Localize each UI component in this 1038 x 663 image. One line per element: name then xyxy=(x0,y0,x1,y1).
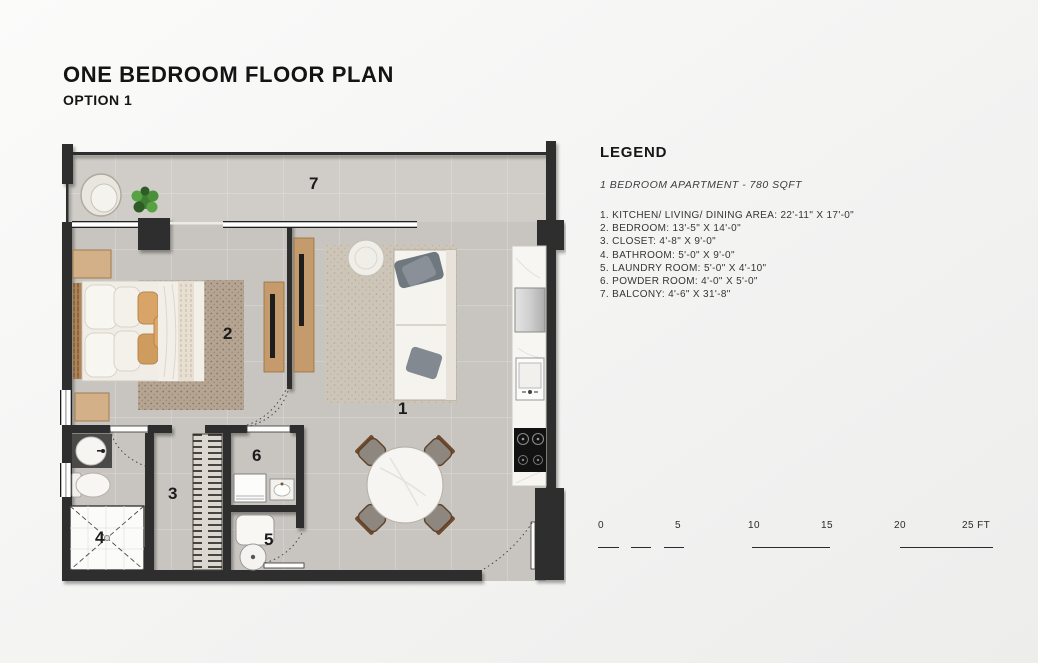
tv-console-living xyxy=(294,238,314,372)
legend-item: 5. LAUNDRY ROOM: 5'-0" X 4'-10" xyxy=(600,262,854,275)
legend-heading: LEGEND xyxy=(600,144,667,161)
legend-item: 6. POWDER ROOM: 4'-0" X 5'-0" xyxy=(600,275,854,288)
scale-tick-label: 10 xyxy=(748,520,760,531)
nightstand xyxy=(75,393,109,421)
sofa xyxy=(393,250,456,400)
room-label-laundry: 5 xyxy=(264,530,273,549)
bathroom-vanity xyxy=(72,434,112,468)
bathroom-window xyxy=(60,463,72,497)
bed xyxy=(73,281,204,381)
scale-bar-segment xyxy=(664,547,684,548)
closet-wardrobe xyxy=(193,434,222,570)
room-label-bedroom: 2 xyxy=(223,324,232,343)
room-label-living: 1 xyxy=(398,399,407,418)
kitchen xyxy=(512,246,546,486)
floor-plan-drawing: 7 2 1 3 4 6 5 xyxy=(60,138,566,590)
page-title: ONE BEDROOM FLOOR PLAN xyxy=(63,62,394,88)
powder-door-leaf xyxy=(247,426,290,432)
bathroom-door-leaf xyxy=(110,426,148,432)
toilet xyxy=(72,473,110,497)
dryer xyxy=(240,544,266,570)
balcony-window-right xyxy=(223,221,417,228)
laundry-door-leaf xyxy=(264,563,304,568)
cooktop xyxy=(514,428,546,472)
fridge xyxy=(515,288,545,332)
floor-plan-page: ONE BEDROOM FLOOR PLAN OPTION 1 xyxy=(0,0,1038,663)
dining-table xyxy=(354,434,455,535)
legend-item: 1. KITCHEN/ LIVING/ DINING AREA: 22'-11"… xyxy=(600,209,854,222)
legend-item: 7. BALCONY: 4'-6" X 31'-8" xyxy=(600,288,854,301)
room-label-balcony: 7 xyxy=(309,174,318,193)
legend-item: 3. CLOSET: 4'-8" X 9'-0" xyxy=(600,235,854,248)
powder-sink xyxy=(270,479,294,500)
legend-unit-summary: 1 BEDROOM APARTMENT - 780 SQFT xyxy=(600,179,802,191)
scale-tick-label: 5 xyxy=(675,520,681,531)
lounge-chair xyxy=(81,174,121,216)
round-ottoman xyxy=(348,240,384,276)
legend-items: 1. KITCHEN/ LIVING/ DINING AREA: 22'-11"… xyxy=(600,209,854,301)
scale-bar-segment xyxy=(631,547,651,548)
room-label-closet: 3 xyxy=(168,484,177,503)
room-label-powder: 6 xyxy=(252,446,261,465)
balcony-door-threshold xyxy=(170,222,223,225)
scale-bar-segment xyxy=(752,547,830,548)
powder-vanity xyxy=(234,474,266,502)
scale-bar-segment xyxy=(900,547,993,548)
room-label-bathroom: 4 xyxy=(95,528,105,547)
shower xyxy=(70,506,144,570)
legend-item: 4. BATHROOM: 5'-0" X 9'-0" xyxy=(600,249,854,262)
balcony-window-left xyxy=(72,221,138,228)
kitchen-sink xyxy=(516,358,544,400)
nightstand xyxy=(73,250,111,278)
scale-tick-label: 15 xyxy=(821,520,833,531)
page-subtitle: OPTION 1 xyxy=(63,92,132,108)
scale-tick-label: 25 FT xyxy=(962,520,990,531)
legend-item: 2. BEDROOM: 13'-5" X 14'-0" xyxy=(600,222,854,235)
scale-bar-segment xyxy=(598,547,619,548)
entry-door-leaf xyxy=(531,522,535,569)
bedroom-window xyxy=(60,390,72,425)
tv-console-bedroom xyxy=(264,282,284,372)
scale-tick-label: 0 xyxy=(598,520,604,531)
scale-tick-label: 20 xyxy=(894,520,906,531)
